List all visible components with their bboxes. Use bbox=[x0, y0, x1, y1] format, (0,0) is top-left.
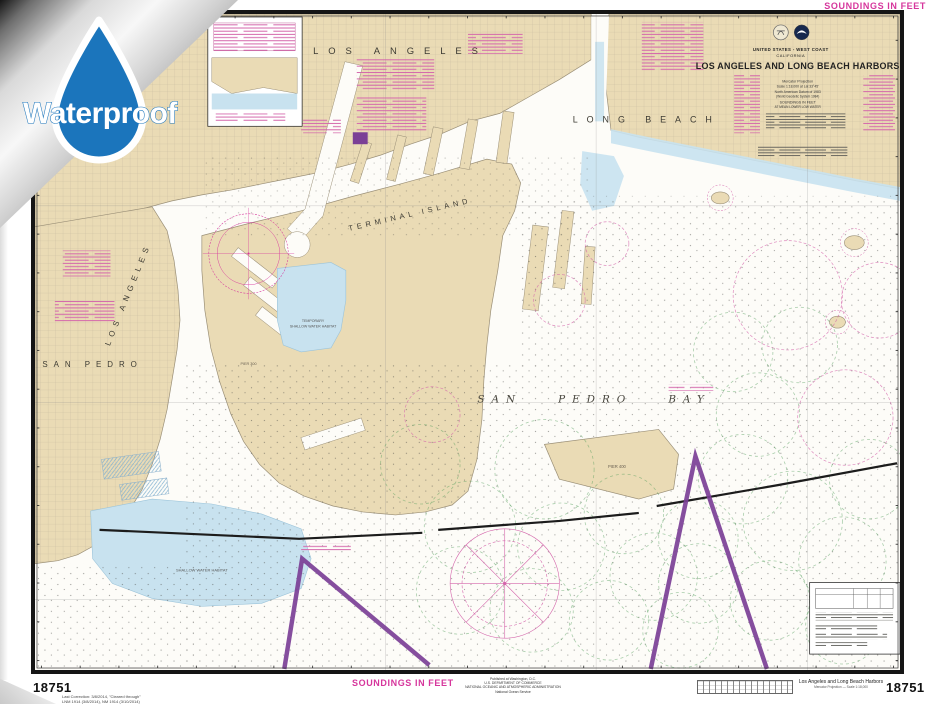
label-los-angeles: LOS ANGELES bbox=[313, 45, 488, 56]
label-habitat-sw: SHALLOW WATER HABITAT bbox=[176, 568, 228, 573]
chart-number-right: 18751 bbox=[886, 680, 925, 695]
shallow-basin-pier300 bbox=[277, 262, 346, 351]
label-pier-300: PIER 300 bbox=[240, 362, 256, 366]
margin-title: Los Angeles and Long Beach Harbors Merca… bbox=[798, 679, 884, 689]
margin-title-sub: Mercator Projection — Scale 1:18,000 bbox=[798, 685, 884, 689]
correction-line-2: LNM 1914 (3/8/2014), NM 1914 (3/10/2014) bbox=[62, 699, 141, 704]
water-drop-icon bbox=[55, 20, 143, 160]
paper-edge bbox=[0, 200, 8, 680]
commerce-seal-icon bbox=[773, 25, 788, 40]
label-san-pedro: SAN PEDRO bbox=[42, 360, 142, 369]
chart-photo: SOUNDINGS IN FEET bbox=[0, 0, 931, 704]
label-habitat-2: SHALLOW WATER HABITAT bbox=[290, 325, 337, 329]
waterproof-label: Waterproof bbox=[23, 97, 178, 130]
color-scale-box bbox=[697, 680, 793, 694]
legend-box bbox=[810, 583, 900, 655]
soundings-note-top: SOUNDINGS IN FEET bbox=[824, 1, 926, 11]
restricted-area-block bbox=[353, 132, 368, 144]
inset-map bbox=[208, 17, 302, 126]
la-river-water bbox=[595, 42, 604, 122]
publisher-block: Published at Washington, D.C. U.S. DEPAR… bbox=[428, 677, 598, 694]
label-long-beach: LONG BEACH bbox=[573, 114, 721, 124]
waterproof-badge: Waterproof bbox=[4, 6, 200, 184]
title-projection: Mercator Projection bbox=[782, 80, 813, 84]
title-state: CALIFORNIA bbox=[776, 53, 805, 58]
anchorage-wheel bbox=[450, 529, 559, 638]
correction-note: Last Correction: 3/8/2014, "Cleared thro… bbox=[62, 694, 141, 704]
publisher-line-4: National Ocean Service bbox=[428, 690, 598, 694]
title-scale: Scale 1:18,000 at Lat 33°45' bbox=[777, 85, 819, 89]
label-habitat-1: TEMPORARY bbox=[302, 319, 325, 323]
title-soundings-1: SOUNDINGS IN FEET bbox=[780, 100, 817, 104]
title-soundings-2: AT MEAN LOWER LOW WATER bbox=[775, 105, 822, 109]
title-agency: UNITED STATES - WEST COAST bbox=[753, 47, 829, 52]
title-datum-note: (World Geodetic System 1984) bbox=[776, 94, 819, 98]
label-pier-400: PIER 400 bbox=[608, 464, 626, 469]
chart-number-left: 18751 bbox=[33, 680, 72, 695]
label-san-pedro-bay: SAN PEDRO BAY bbox=[477, 394, 710, 406]
chart-title: LOS ANGELES AND LONG BEACH HARBORS bbox=[696, 61, 900, 71]
